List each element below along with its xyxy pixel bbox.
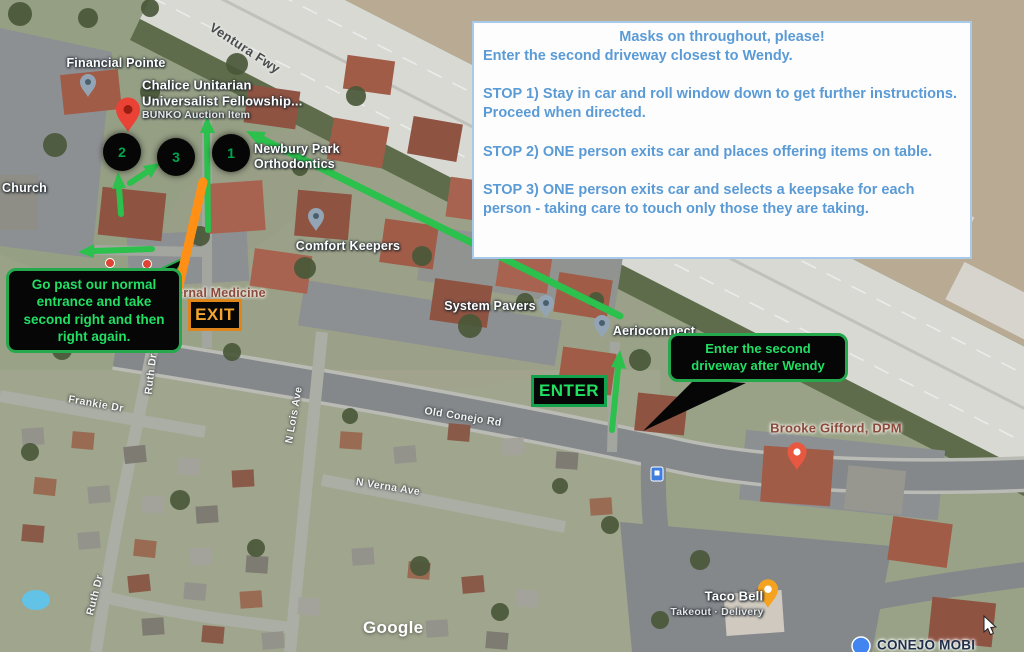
arrow-enter-driveway [612, 368, 618, 430]
brooke-gifford-pin [787, 442, 806, 470]
label-brooke-gifford: Brooke Gifford, DPM [770, 421, 902, 436]
instruction-box: Masks on throughout, please! Enter the s… [472, 21, 972, 259]
label-financial-pointe: Financial Pointe [66, 56, 165, 70]
instruction-stop-2: STOP 2) ONE person exits car and places … [483, 143, 961, 162]
label-orthodontics: Orthodontics [254, 157, 335, 171]
stop-marker-3: 3 [157, 138, 195, 176]
mouse-cursor [984, 616, 996, 635]
label-system-pavers: System Pavers [444, 299, 536, 313]
label-chalice-line2: Universalist Fellowship... [142, 94, 303, 109]
financial-pointe-pin [80, 74, 96, 97]
label-church: Church [2, 181, 47, 195]
exit-badge: EXIT [188, 299, 242, 331]
system-pavers-pin [538, 295, 554, 318]
instruction-stop-1: STOP 1) Stay in car and roll window down… [483, 85, 961, 123]
annotated-map-screenshot: Financial Pointe Chalice Unitarian Unive… [0, 0, 1024, 652]
callout-enter-second-driveway: Enter the second driveway after Wendy [668, 333, 848, 382]
stop-marker-2: 2 [103, 133, 141, 171]
comfort-keepers-pin [308, 208, 324, 231]
callout-go-past-entrance: Go past our normal entrance and take sec… [6, 268, 182, 353]
aerioconnect-pin [594, 315, 610, 338]
callout-right-tail [643, 380, 746, 431]
label-bunko-auction-item: BUNKO Auction Item [142, 109, 250, 121]
label-taco-bell: Taco Bell [705, 589, 764, 604]
label-chalice-line1: Chalice Unitarian [142, 78, 252, 93]
small-poi-pin [106, 259, 115, 268]
roadside-blue-icon [651, 467, 663, 481]
label-conejo-partial: CONEJO MOBI [877, 638, 975, 652]
arrow-complex-upright [130, 172, 147, 183]
arrow-complex-up [119, 188, 121, 214]
chalice-pin [116, 98, 140, 133]
instruction-intro: Enter the second driveway closest to Wen… [483, 47, 961, 66]
label-taco-bell-services: Takeout · Delivery [670, 606, 763, 618]
arrow-complex-left [94, 249, 152, 251]
conejo-place-icon [852, 637, 870, 652]
label-comfort-keepers: Comfort Keepers [296, 239, 400, 253]
instruction-stop-3: STOP 3) ONE person exits car and selects… [483, 181, 961, 219]
enter-badge: ENTER [531, 375, 607, 407]
instruction-title: Masks on throughout, please! [483, 28, 961, 47]
google-watermark: Google [363, 618, 423, 638]
label-newbury-park: Newbury Park [254, 142, 340, 156]
stop-marker-1: 1 [212, 134, 250, 172]
